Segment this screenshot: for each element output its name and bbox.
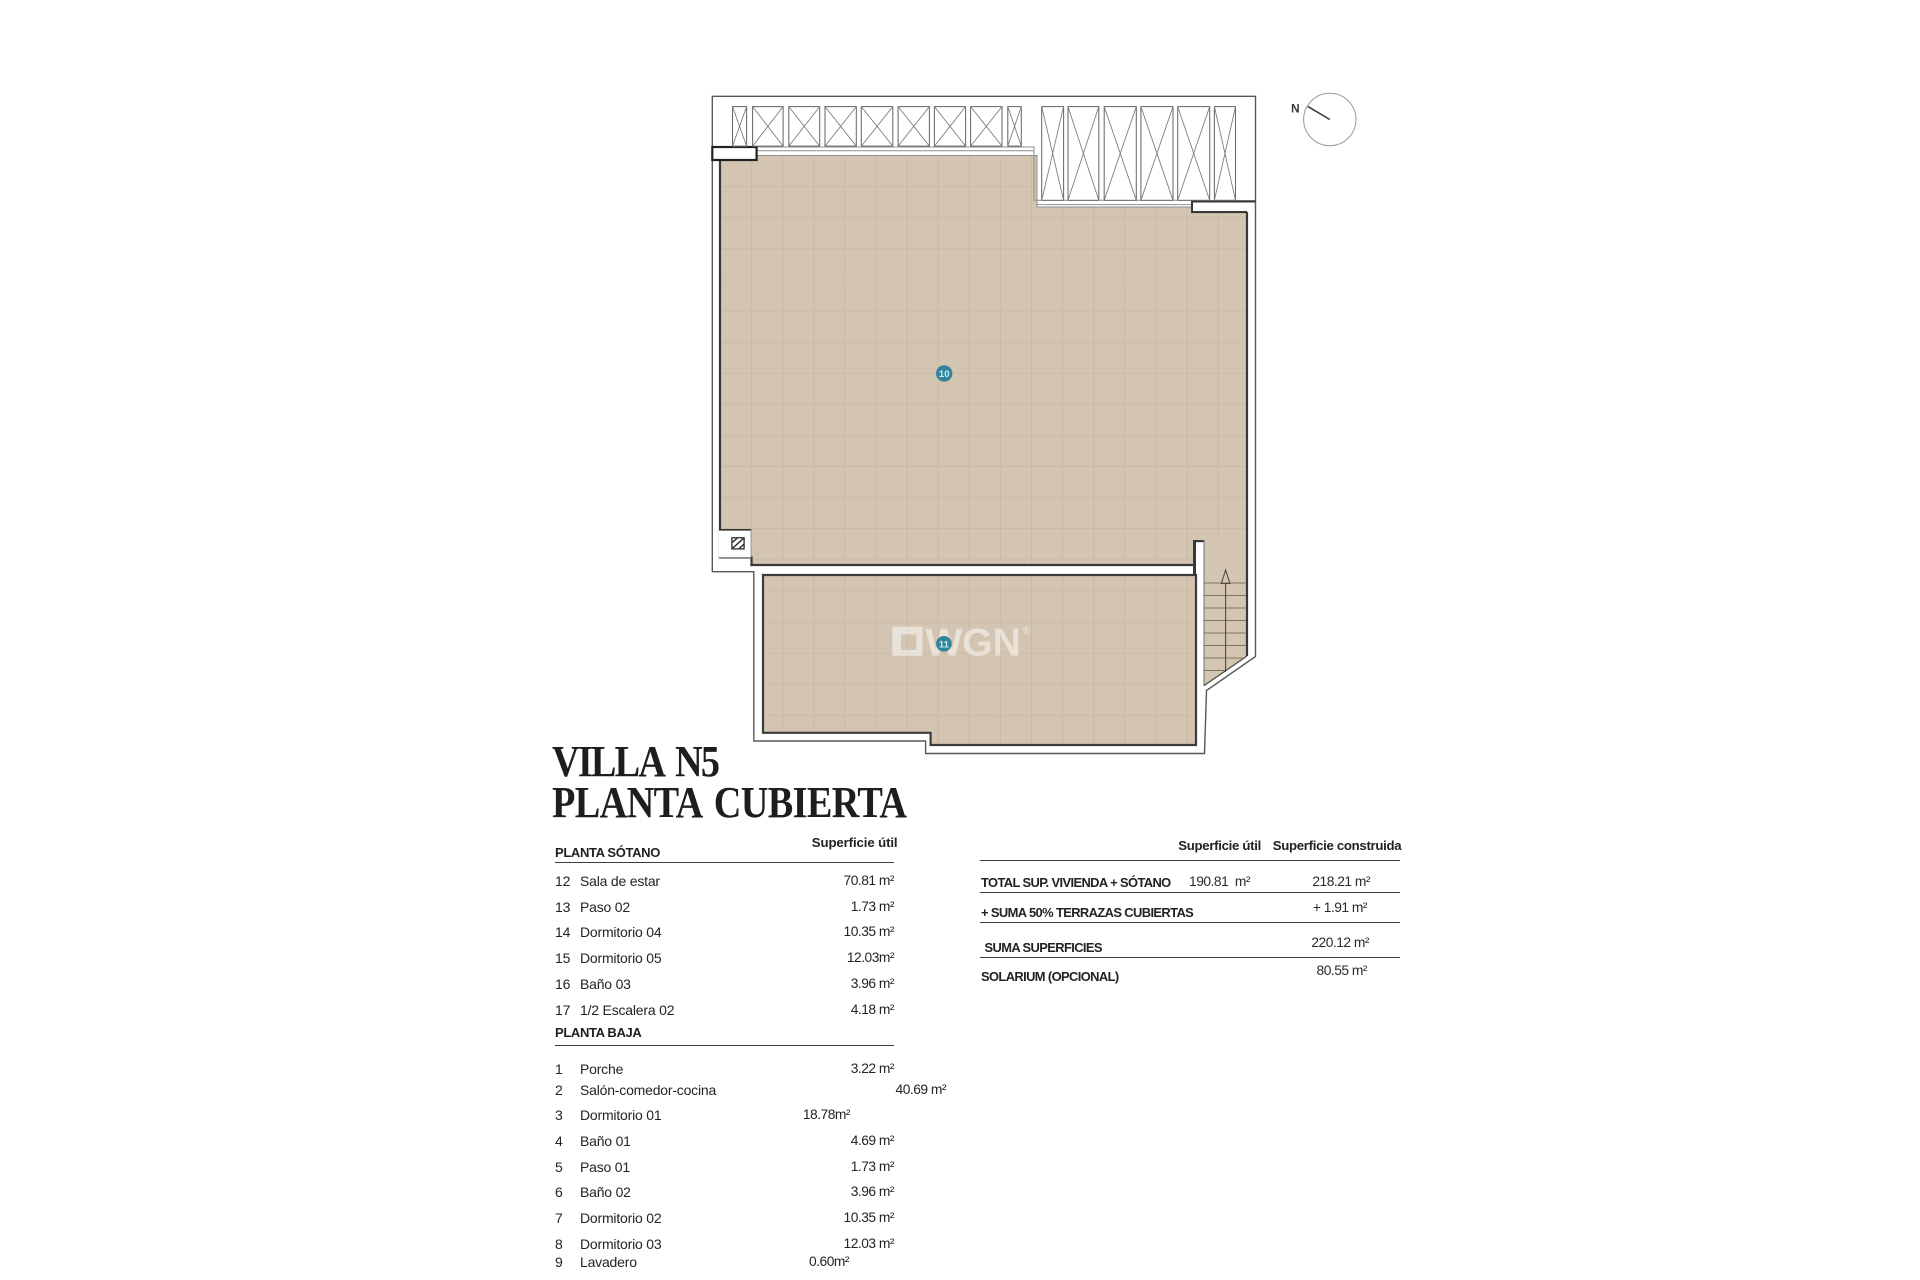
svg-text:®: ®: [1023, 626, 1031, 637]
svg-text:N: N: [1291, 102, 1300, 116]
svg-text:11: 11: [939, 639, 950, 650]
svg-text:10: 10: [939, 369, 950, 380]
